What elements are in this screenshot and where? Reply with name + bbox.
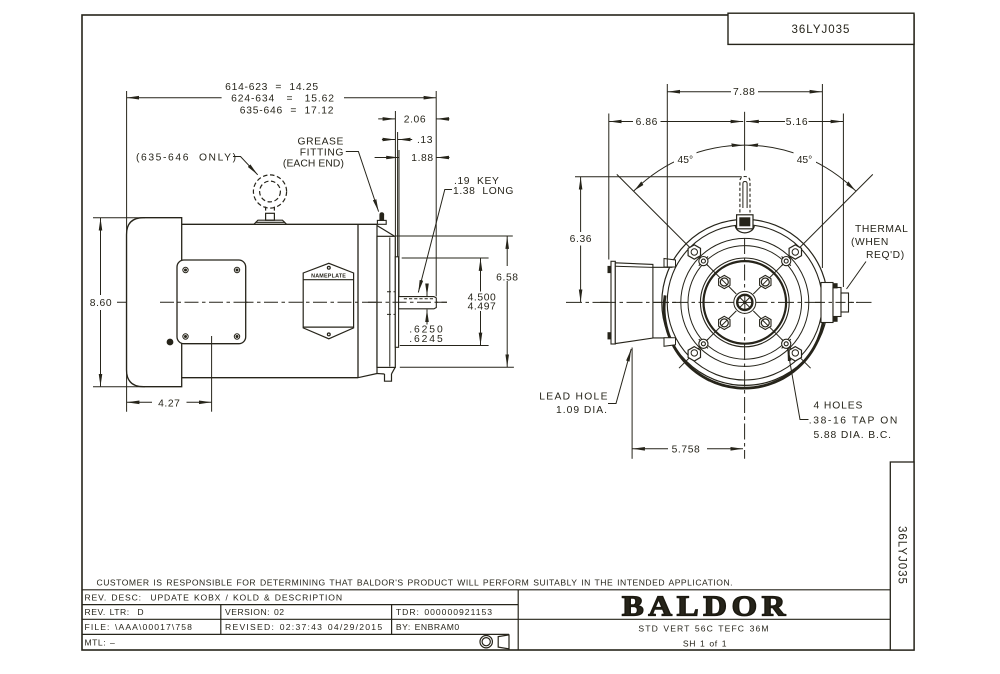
svg-text:THERMAL: THERMAL (855, 224, 908, 235)
svg-text:BY: ENBRAM0: BY: ENBRAM0 (396, 622, 460, 632)
svg-text:REV. LTR: D: REV. LTR: D (85, 607, 145, 617)
svg-text:(WHEN: (WHEN (851, 237, 889, 248)
svg-text:635-646 = 17.12: 635-646 = 17.12 (240, 105, 335, 116)
svg-text:4.27: 4.27 (158, 398, 180, 409)
svg-text:5.758: 5.758 (672, 444, 701, 455)
svg-text:BALDOR: BALDOR (622, 590, 790, 621)
svg-text:1.09 DIA.: 1.09 DIA. (556, 405, 608, 416)
svg-text:5.88 DIA. B.C.: 5.88 DIA. B.C. (814, 430, 892, 441)
svg-text:LEAD HOLE: LEAD HOLE (539, 391, 609, 402)
svg-text:FILE: \AAA\00017\758: FILE: \AAA\00017\758 (85, 622, 194, 632)
svg-text:614-623 = 14.25: 614-623 = 14.25 (225, 82, 319, 93)
svg-text:STD VERT 56C TEFC 36M: STD VERT 56C TEFC 36M (638, 624, 769, 634)
svg-text:6.58: 6.58 (496, 273, 518, 284)
svg-text:45°: 45° (797, 155, 813, 166)
svg-text:.6245: .6245 (409, 334, 444, 345)
svg-text:4 HOLES: 4 HOLES (814, 401, 864, 412)
svg-text:1.38 LONG: 1.38 LONG (453, 186, 514, 197)
svg-text:(EACH END): (EACH END) (283, 158, 344, 169)
svg-text:6.36: 6.36 (570, 234, 592, 245)
svg-text:5.16: 5.16 (786, 117, 808, 128)
svg-text:REV. DESC: UPDATE KOBX / KOLD: REV. DESC: UPDATE KOBX / KOLD & DESCRIPT… (85, 593, 343, 603)
svg-text:6.86: 6.86 (636, 117, 658, 128)
svg-text:REQ'D): REQ'D) (866, 250, 905, 261)
svg-text:36LYJ035: 36LYJ035 (792, 24, 851, 36)
svg-text:VERSION: 02: VERSION: 02 (225, 607, 285, 617)
svg-text:(635-646 ONLY): (635-646 ONLY) (136, 153, 238, 164)
svg-text:36LYJ035: 36LYJ035 (896, 526, 908, 585)
svg-text:.38-16 TAP ON: .38-16 TAP ON (809, 415, 899, 426)
svg-text:7.88: 7.88 (733, 87, 755, 98)
svg-text:45°: 45° (678, 155, 694, 166)
svg-text:SH 1 of 1: SH 1 of 1 (683, 639, 727, 649)
svg-text:TDR: 000000921153: TDR: 000000921153 (396, 607, 493, 617)
svg-text:.13: .13 (417, 135, 433, 146)
svg-text:1.88: 1.88 (411, 153, 433, 164)
svg-text:CUSTOMER IS RESPONSIBLE FOR DE: CUSTOMER IS RESPONSIBLE FOR DETERMINING … (97, 578, 734, 588)
svg-text:GREASE: GREASE (297, 136, 344, 147)
svg-text:MTL: –: MTL: – (85, 637, 116, 647)
svg-text:FITTING: FITTING (300, 147, 344, 158)
svg-text:8.60: 8.60 (90, 298, 112, 309)
svg-text:NAMEPLATE: NAMEPLATE (311, 274, 346, 280)
svg-text:REVISED: 02:37:43 04/29/2015: REVISED: 02:37:43 04/29/2015 (225, 622, 383, 632)
svg-text:2.06: 2.06 (404, 114, 426, 125)
svg-text:4.497: 4.497 (468, 302, 497, 313)
svg-text:624-634 = 15.62: 624-634 = 15.62 (231, 94, 335, 105)
